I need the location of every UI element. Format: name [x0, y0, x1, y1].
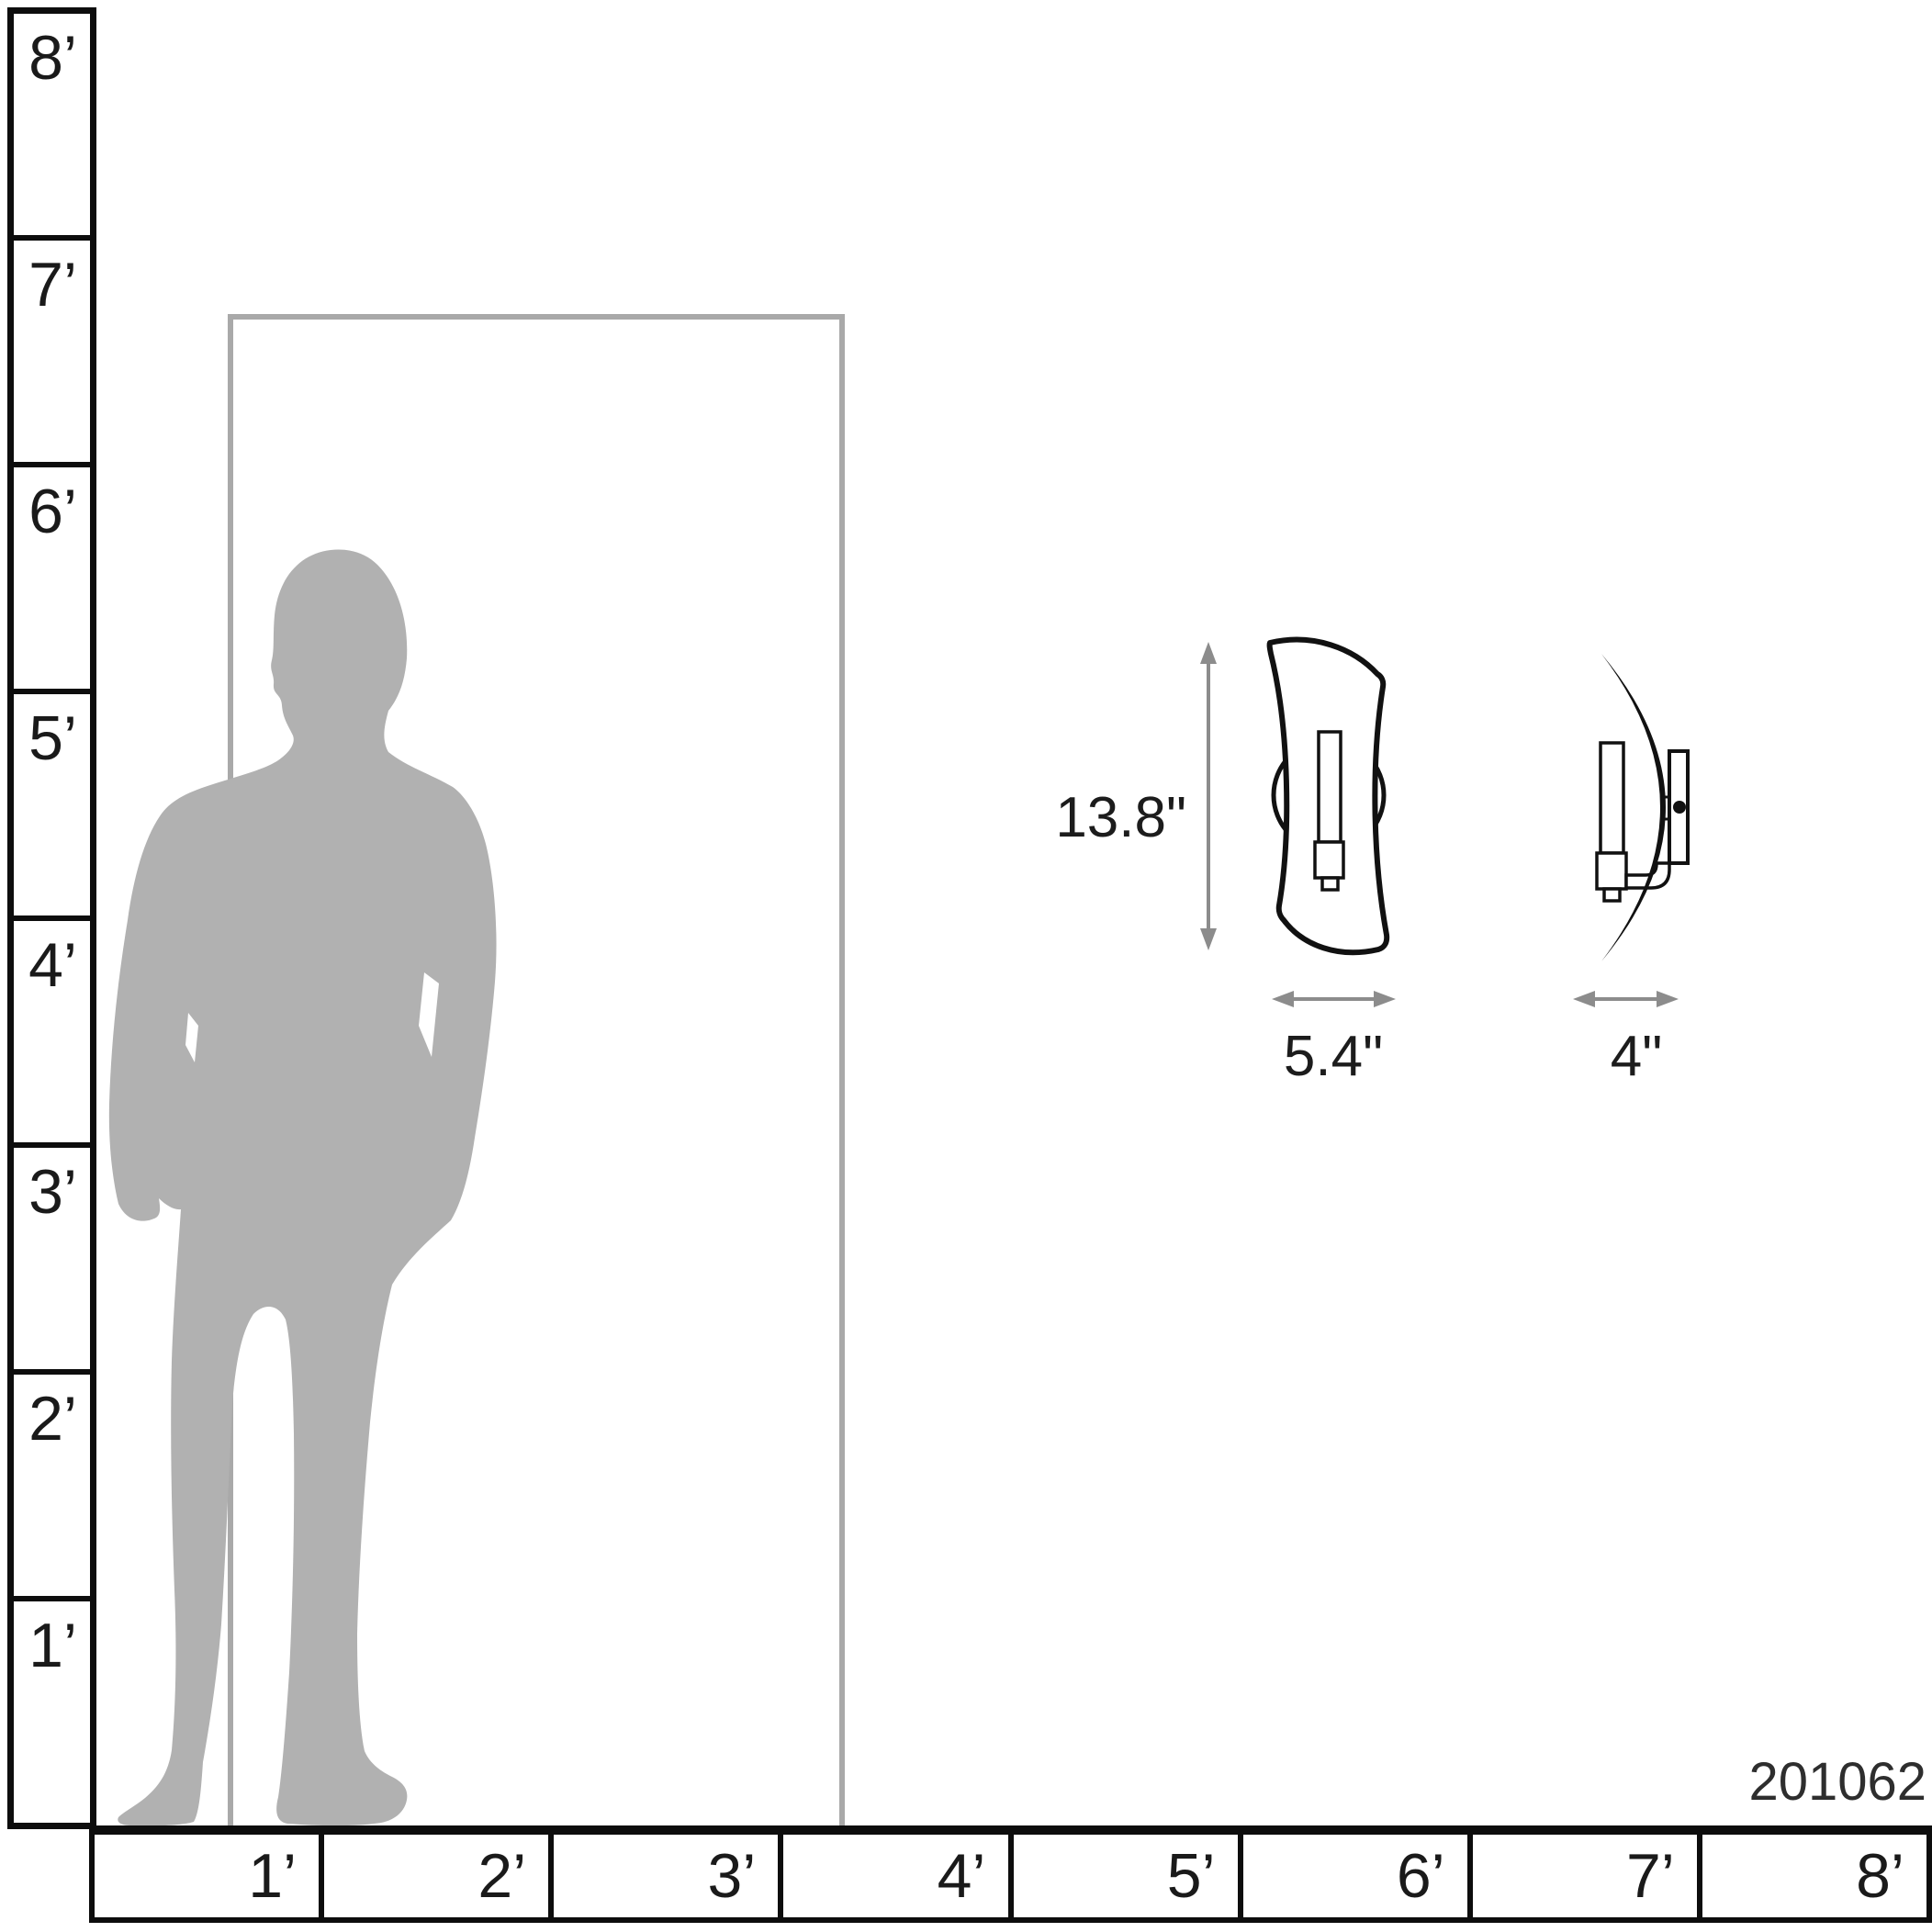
vertical-ruler-segment: 6’ — [14, 467, 90, 694]
front-lamp-tip — [1322, 878, 1338, 890]
side-lamp-tube — [1601, 743, 1623, 853]
ruler-label: 8’ — [28, 27, 77, 89]
horizontal-ruler-segment: 6’ — [1243, 1835, 1473, 1917]
horizontal-ruler-segment: 5’ — [1014, 1835, 1243, 1917]
sconce-front-view — [1270, 640, 1387, 953]
height-dimension-arrow — [1200, 642, 1217, 950]
ruler-label: 2’ — [28, 1387, 77, 1450]
depth-dimension-arrow — [1573, 991, 1679, 1007]
diagram-art — [0, 0, 1932, 1932]
vertical-ruler-segment: 5’ — [14, 694, 90, 921]
ruler-label: 3’ — [28, 1161, 77, 1223]
ruler-label: 7’ — [1626, 1845, 1675, 1907]
depth-dimension-label: 4" — [1590, 1028, 1682, 1085]
vertical-ruler: 8’ 7’ 6’ 5’ 4’ 3’ 2’ 1’ — [7, 7, 96, 1829]
ruler-label: 2’ — [477, 1845, 526, 1907]
width-dimension-arrow — [1272, 991, 1396, 1007]
height-dimension-label: 13.8" — [973, 790, 1186, 847]
horizontal-ruler-segment: 2’ — [324, 1835, 554, 1917]
vertical-ruler-segment: 1’ — [14, 1601, 90, 1823]
sconce-side-view — [1597, 654, 1688, 961]
vertical-ruler-segment: 8’ — [14, 14, 90, 241]
ruler-label: 5’ — [28, 707, 77, 769]
dimension-diagram: 8’ 7’ 6’ 5’ 4’ 3’ 2’ 1’ 1’ 2’ 3’ 4’ 5’ 6… — [0, 0, 1932, 1932]
standing-man-silhouette — [109, 550, 497, 1826]
vertical-ruler-segment: 3’ — [14, 1148, 90, 1375]
ruler-label: 3’ — [707, 1845, 756, 1907]
bracket-screw — [1673, 801, 1686, 814]
front-lamp-tube — [1319, 732, 1341, 842]
vertical-ruler-segment: 7’ — [14, 241, 90, 467]
ruler-label: 7’ — [28, 253, 77, 316]
ruler-label: 1’ — [28, 1614, 77, 1677]
side-lamp-tip — [1604, 889, 1620, 901]
vertical-ruler-segment: 4’ — [14, 921, 90, 1148]
vertical-ruler-segment: 2’ — [14, 1375, 90, 1601]
side-lamp-socket — [1597, 853, 1626, 889]
horizontal-ruler-segment: 4’ — [783, 1835, 1013, 1917]
width-dimension-label: 5.4" — [1264, 1028, 1402, 1085]
ruler-label: 5’ — [1167, 1845, 1216, 1907]
product-number: 201062 — [1697, 1756, 1926, 1809]
horizontal-ruler: 1’ 2’ 3’ 4’ 5’ 6’ 7’ 8’ — [89, 1825, 1932, 1923]
ruler-label: 6’ — [1397, 1845, 1445, 1907]
ruler-label: 6’ — [28, 480, 77, 543]
horizontal-ruler-segment: 7’ — [1473, 1835, 1702, 1917]
horizontal-ruler-segment: 1’ — [95, 1835, 324, 1917]
ruler-label: 8’ — [1856, 1845, 1904, 1907]
ruler-label: 1’ — [248, 1845, 297, 1907]
horizontal-ruler-segment: 8’ — [1702, 1835, 1926, 1917]
ruler-label: 4’ — [28, 934, 77, 996]
front-lamp-socket — [1315, 842, 1343, 878]
ruler-label: 4’ — [938, 1845, 986, 1907]
horizontal-ruler-segment: 3’ — [554, 1835, 783, 1917]
